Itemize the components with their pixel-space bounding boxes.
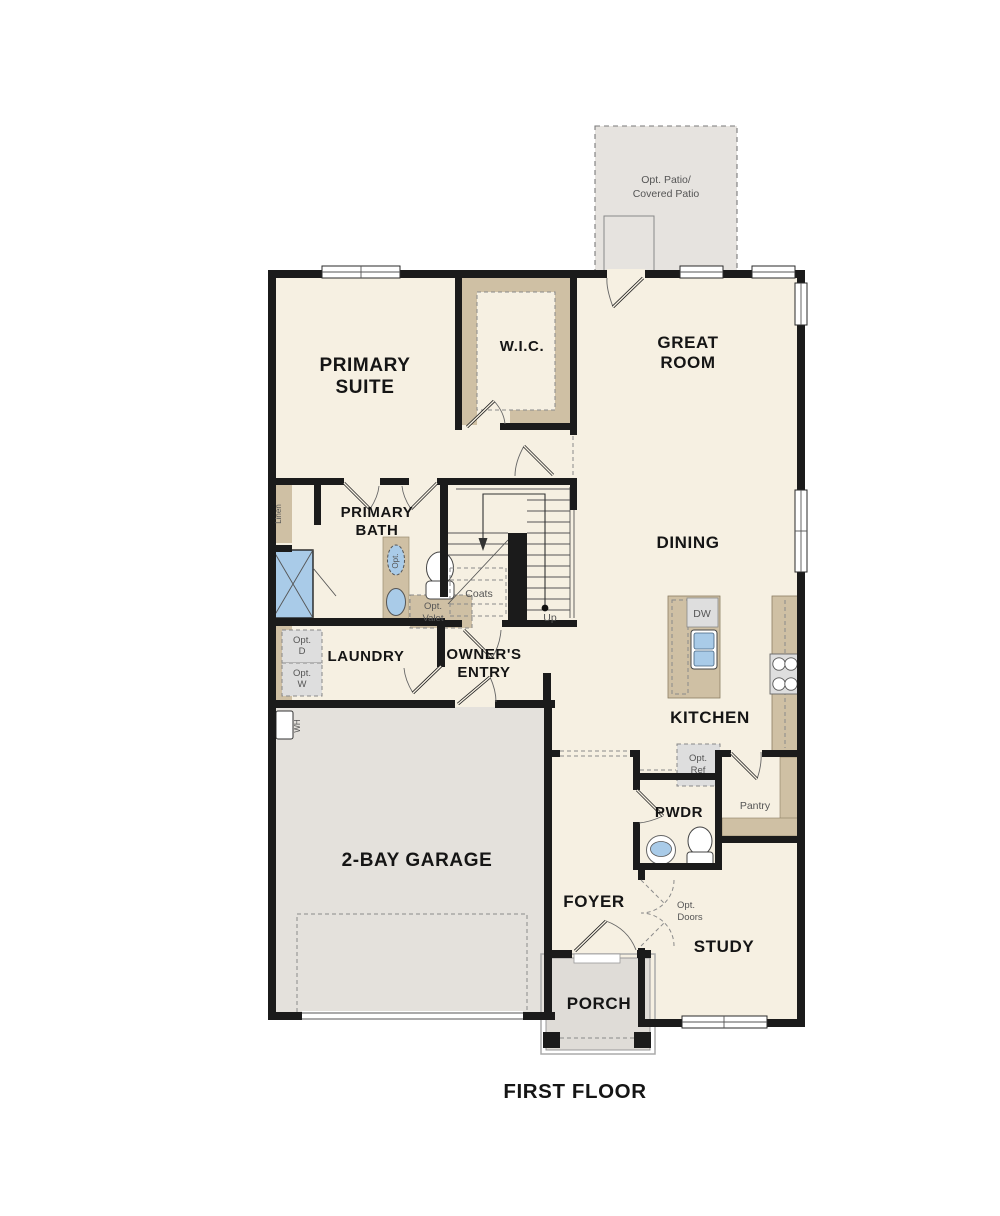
porch-post-left (543, 1032, 560, 1048)
cooktop (770, 654, 800, 694)
window-dining-right (795, 490, 807, 572)
label-coats: Coats (465, 588, 492, 600)
floorplan-page: Opt. Patio/ Covered Patio (0, 0, 1000, 1216)
label-primary-suite-2: SUITE (336, 377, 395, 398)
label-owners-entry-1: OWNER'S (446, 646, 521, 663)
label-linen: Linen (274, 504, 283, 524)
label-foyer: FOYER (563, 892, 625, 911)
patio-area: Opt. Patio/ Covered Patio (595, 126, 737, 274)
label-study: STUDY (694, 937, 755, 956)
label-wic: W.I.C. (500, 338, 544, 355)
floorplan-drawing: Opt. Patio/ Covered Patio (0, 0, 1000, 1216)
window-primary-suite (322, 266, 400, 278)
label-opt-ref-2: Ref (691, 765, 706, 776)
label-opt-ref-1: Opt. (689, 753, 707, 764)
label-great-room-1: GREAT (657, 333, 718, 352)
label-opt-doors-1: Opt. (677, 900, 695, 911)
label-great-room-2: ROOM (660, 353, 715, 372)
pwdr-sink (647, 836, 676, 865)
label-laundry: LAUNDRY (328, 648, 405, 665)
window-great-room-top-1 (680, 266, 723, 278)
window-study (682, 1016, 767, 1028)
stair-start-dot (542, 605, 549, 612)
label-opt-valet-1: Opt. (424, 601, 442, 612)
label-wh: WH (293, 719, 302, 733)
label-up: Up (543, 612, 557, 624)
patio-label-1: Opt. Patio/ (641, 174, 691, 186)
front-door-threshold (574, 954, 620, 963)
label-kitchen: KITCHEN (670, 708, 750, 727)
label-primary-suite-1: PRIMARY (319, 355, 410, 376)
label-owners-entry-2: ENTRY (457, 664, 510, 681)
label-dining: DINING (656, 533, 719, 552)
floor-foyer-hall (544, 700, 645, 958)
label-opt-sink: Opt. (391, 553, 400, 568)
label-opt-washer-1: Opt. (293, 668, 311, 679)
porch-post-right (634, 1032, 651, 1048)
label-opt-dryer-1: Opt. (293, 635, 311, 646)
plan-title: FIRST FLOOR (503, 1080, 646, 1103)
label-opt-washer-2: W (298, 679, 307, 690)
water-heater (276, 711, 293, 739)
pwdr-toilet (687, 827, 713, 866)
patio-step (604, 216, 654, 272)
label-dw: DW (693, 608, 711, 620)
label-pantry: Pantry (740, 800, 771, 812)
pantry-shelf-bottom (722, 818, 798, 836)
window-great-room-right (795, 283, 807, 325)
label-primary-bath-1: PRIMARY (341, 504, 414, 521)
bath-sink (387, 589, 406, 616)
window-great-room-top-2 (752, 266, 795, 278)
kitchen-sink (691, 630, 717, 669)
stair-center-wall (508, 533, 527, 621)
label-opt-valet-2: Valet (423, 613, 444, 624)
label-opt-dryer-2: D (299, 646, 306, 657)
label-garage: 2-BAY GARAGE (342, 850, 493, 871)
patio-label-2: Covered Patio (633, 188, 700, 200)
label-pwdr: PWDR (655, 804, 703, 821)
label-primary-bath-2: BATH (356, 522, 399, 539)
label-opt-doors-2: Doors (677, 912, 703, 923)
label-porch: PORCH (567, 994, 631, 1013)
